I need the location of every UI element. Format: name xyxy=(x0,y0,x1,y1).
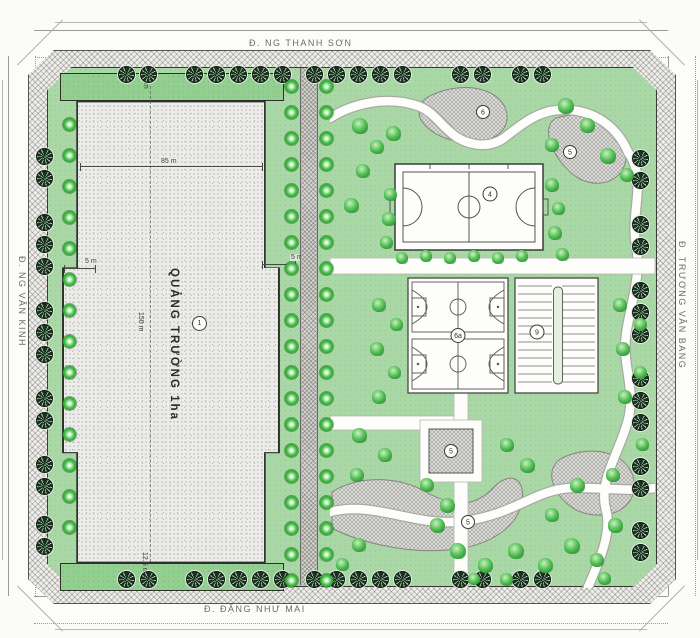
lawn-tree-icon xyxy=(63,397,76,410)
street-tree-icon xyxy=(350,571,367,588)
street-tree-icon xyxy=(372,66,389,83)
park-tree-icon xyxy=(440,498,455,513)
boulevard-tree-icon xyxy=(285,80,298,93)
street-tree-icon xyxy=(36,258,53,275)
boulevard-tree-icon xyxy=(285,184,298,197)
boulevard-tree-icon xyxy=(285,496,298,509)
park-tree-icon xyxy=(516,250,528,262)
street-tree-icon xyxy=(394,66,411,83)
park-tree-icon xyxy=(386,126,401,141)
park-tree-icon xyxy=(420,478,434,492)
park-tree-icon xyxy=(370,342,384,356)
park-tree-icon xyxy=(372,298,386,312)
park-tree-icon xyxy=(384,188,397,201)
lawn-tree-icon xyxy=(63,459,76,472)
park-tree-icon xyxy=(618,390,632,404)
park-tree-icon xyxy=(520,458,535,473)
park-tree-icon xyxy=(564,538,580,554)
street-tree-icon xyxy=(632,392,649,409)
park-tree-icon xyxy=(620,168,634,182)
street-tree-icon xyxy=(632,522,649,539)
street-tree-icon xyxy=(230,66,247,83)
tree-layer xyxy=(0,0,700,638)
lawn-tree-icon xyxy=(63,428,76,441)
park-tree-icon xyxy=(508,543,524,559)
street-tree-icon xyxy=(252,571,269,588)
park-tree-icon xyxy=(613,298,627,312)
boulevard-tree-icon xyxy=(320,210,333,223)
street-tree-icon xyxy=(632,172,649,189)
lawn-tree-icon xyxy=(63,366,76,379)
park-tree-icon xyxy=(382,212,396,226)
street-tree-icon xyxy=(208,571,225,588)
boulevard-tree-icon xyxy=(285,522,298,535)
park-tree-icon xyxy=(606,468,620,482)
park-tree-icon xyxy=(390,318,403,331)
boulevard-tree-icon xyxy=(285,262,298,275)
park-tree-icon xyxy=(378,448,392,462)
street-tree-icon xyxy=(36,148,53,165)
boulevard-tree-icon xyxy=(285,106,298,119)
park-tree-icon xyxy=(608,518,623,533)
street-tree-icon xyxy=(36,516,53,533)
street-tree-icon xyxy=(632,282,649,299)
park-tree-icon xyxy=(634,318,647,331)
park-tree-icon xyxy=(350,468,364,482)
street-tree-icon xyxy=(36,346,53,363)
park-tree-icon xyxy=(590,553,604,567)
boulevard-tree-icon xyxy=(320,366,333,379)
street-tree-icon xyxy=(36,170,53,187)
park-tree-icon xyxy=(492,252,504,264)
boulevard-tree-icon xyxy=(320,496,333,509)
street-tree-icon xyxy=(252,66,269,83)
boulevard-tree-icon xyxy=(320,522,333,535)
boulevard-tree-icon xyxy=(285,392,298,405)
boulevard-tree-icon xyxy=(285,132,298,145)
boulevard-tree-icon xyxy=(285,210,298,223)
park-tree-icon xyxy=(600,148,616,164)
park-tree-icon xyxy=(344,198,359,213)
boulevard-tree-icon xyxy=(285,340,298,353)
lawn-tree-icon xyxy=(63,490,76,503)
park-tree-icon xyxy=(352,538,366,552)
park-tree-icon xyxy=(478,558,493,573)
boulevard-tree-icon xyxy=(320,340,333,353)
park-tree-icon xyxy=(352,428,367,443)
street-tree-icon xyxy=(350,66,367,83)
park-tree-icon xyxy=(545,178,559,192)
street-tree-icon xyxy=(36,236,53,253)
street-tree-icon xyxy=(36,324,53,341)
street-tree-icon xyxy=(36,390,53,407)
boulevard-tree-icon xyxy=(285,366,298,379)
boulevard-tree-icon xyxy=(285,158,298,171)
park-tree-icon xyxy=(616,342,630,356)
boulevard-tree-icon xyxy=(320,444,333,457)
street-tree-icon xyxy=(394,571,411,588)
park-tree-icon xyxy=(558,98,574,114)
park-tree-icon xyxy=(636,438,649,451)
park-tree-icon xyxy=(380,236,393,249)
street-tree-icon xyxy=(632,150,649,167)
park-tree-icon xyxy=(372,390,386,404)
street-tree-icon xyxy=(452,66,469,83)
street-tree-icon xyxy=(632,238,649,255)
park-tree-icon xyxy=(356,164,370,178)
park-tree-icon xyxy=(580,118,595,133)
boulevard-tree-icon xyxy=(285,574,298,587)
lawn-tree-icon xyxy=(63,149,76,162)
street-tree-icon xyxy=(512,571,529,588)
park-tree-icon xyxy=(450,543,466,559)
boulevard-tree-icon xyxy=(320,184,333,197)
park-tree-icon xyxy=(548,226,562,240)
boulevard-tree-icon xyxy=(320,80,333,93)
street-tree-icon xyxy=(36,538,53,555)
park-tree-icon xyxy=(468,573,480,585)
boulevard-tree-icon xyxy=(320,262,333,275)
park-tree-icon xyxy=(370,140,384,154)
street-tree-icon xyxy=(534,571,551,588)
street-tree-icon xyxy=(36,214,53,231)
street-tree-icon xyxy=(512,66,529,83)
park-tree-icon xyxy=(598,572,611,585)
street-tree-icon xyxy=(140,66,157,83)
street-tree-icon xyxy=(632,544,649,561)
street-tree-icon xyxy=(36,456,53,473)
street-tree-icon xyxy=(632,414,649,431)
park-tree-icon xyxy=(430,518,445,533)
boulevard-tree-icon xyxy=(320,288,333,301)
street-tree-icon xyxy=(36,412,53,429)
boulevard-tree-icon xyxy=(320,158,333,171)
lawn-tree-icon xyxy=(63,118,76,131)
street-tree-icon xyxy=(306,66,323,83)
street-tree-icon xyxy=(36,478,53,495)
park-tree-icon xyxy=(396,252,408,264)
street-tree-icon xyxy=(452,571,469,588)
street-tree-icon xyxy=(474,66,491,83)
park-tree-icon xyxy=(388,366,401,379)
park-tree-icon xyxy=(545,138,559,152)
street-tree-icon xyxy=(534,66,551,83)
boulevard-tree-icon xyxy=(320,106,333,119)
street-tree-icon xyxy=(186,571,203,588)
park-tree-icon xyxy=(552,202,565,215)
lawn-tree-icon xyxy=(63,304,76,317)
park-tree-icon xyxy=(545,508,559,522)
boulevard-tree-icon xyxy=(320,574,333,587)
street-tree-icon xyxy=(230,571,247,588)
boulevard-tree-icon xyxy=(320,548,333,561)
boulevard-tree-icon xyxy=(285,470,298,483)
site-plan: Đ. NG THANH SƠN Đ. ĐẶNG NHƯ MAI Đ. NG VĂ… xyxy=(0,0,700,638)
park-tree-icon xyxy=(634,366,647,379)
park-tree-icon xyxy=(420,250,432,262)
street-tree-icon xyxy=(118,571,135,588)
street-tree-icon xyxy=(208,66,225,83)
boulevard-tree-icon xyxy=(285,548,298,561)
street-tree-icon xyxy=(632,216,649,233)
boulevard-tree-icon xyxy=(320,470,333,483)
park-tree-icon xyxy=(556,248,569,261)
street-tree-icon xyxy=(118,66,135,83)
lawn-tree-icon xyxy=(63,211,76,224)
boulevard-tree-icon xyxy=(320,418,333,431)
street-tree-icon xyxy=(186,66,203,83)
boulevard-tree-icon xyxy=(320,314,333,327)
street-tree-icon xyxy=(632,480,649,497)
street-tree-icon xyxy=(372,571,389,588)
park-tree-icon xyxy=(444,252,456,264)
boulevard-tree-icon xyxy=(285,314,298,327)
boulevard-tree-icon xyxy=(285,418,298,431)
boulevard-tree-icon xyxy=(320,132,333,145)
park-tree-icon xyxy=(500,438,514,452)
park-tree-icon xyxy=(468,250,480,262)
boulevard-tree-icon xyxy=(285,444,298,457)
lawn-tree-icon xyxy=(63,273,76,286)
park-tree-icon xyxy=(500,573,513,586)
street-tree-icon xyxy=(36,302,53,319)
boulevard-tree-icon xyxy=(285,288,298,301)
street-tree-icon xyxy=(140,571,157,588)
boulevard-tree-icon xyxy=(285,236,298,249)
boulevard-tree-icon xyxy=(320,236,333,249)
park-tree-icon xyxy=(570,478,585,493)
park-tree-icon xyxy=(336,558,349,571)
lawn-tree-icon xyxy=(63,521,76,534)
lawn-tree-icon xyxy=(63,242,76,255)
lawn-tree-icon xyxy=(63,180,76,193)
street-tree-icon xyxy=(632,458,649,475)
park-tree-icon xyxy=(352,118,368,134)
park-tree-icon xyxy=(538,558,553,573)
lawn-tree-icon xyxy=(63,335,76,348)
boulevard-tree-icon xyxy=(320,392,333,405)
